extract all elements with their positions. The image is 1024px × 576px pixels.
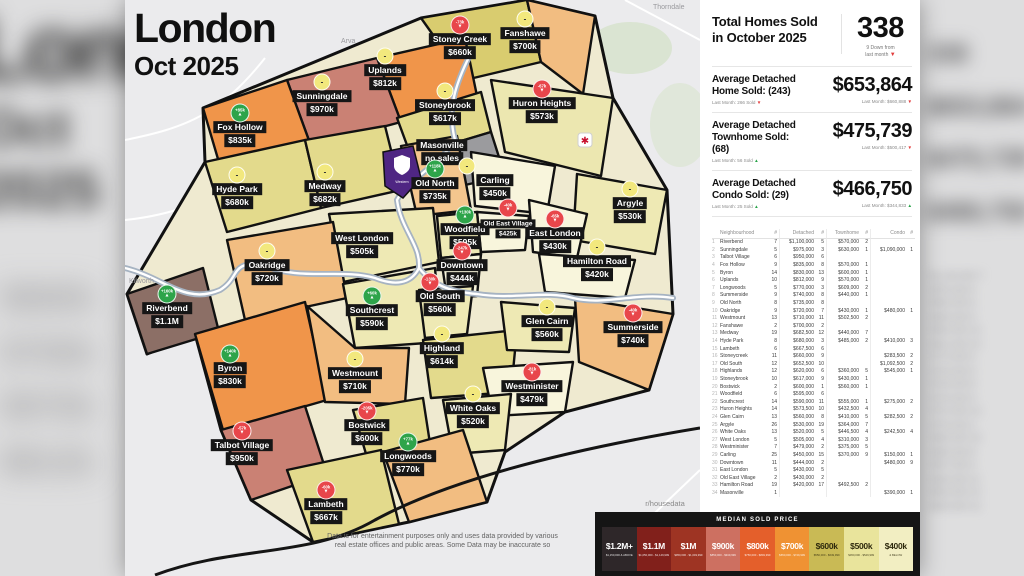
table-cell: $440,000: [827, 330, 861, 338]
disclaimer-line2: real estate offices and public areas. So…: [275, 541, 610, 550]
up-arrow-icon: ▲: [165, 294, 170, 299]
stat-label: Average DetachedCondo Sold: (29): [712, 178, 808, 202]
table-cell: 2: [861, 338, 871, 346]
table-cell: $410,000: [827, 414, 861, 422]
table-cell: [907, 323, 915, 331]
table-cell-neighbourhood: Summerside: [720, 292, 768, 300]
table-cell: $242,500: [871, 429, 907, 437]
table-cell: 13: [768, 315, 780, 323]
table-cell: 17: [712, 361, 720, 369]
table-cell: [871, 475, 907, 483]
table-cell: 24: [712, 414, 720, 422]
table-cell: 3: [907, 338, 915, 346]
table-cell: [871, 422, 907, 430]
change-badge-talbot-village: -57k▼: [233, 422, 252, 441]
legend-swatch-range: & BELOW: [889, 553, 902, 557]
change-badge-medway: -: [317, 164, 334, 181]
table-cell: 33: [712, 482, 720, 490]
table-cell: 2: [907, 361, 915, 369]
table-cell: 1: [907, 490, 915, 498]
table-cell: [871, 467, 907, 475]
table-cell: 2: [768, 384, 780, 392]
legend-swatch-label: $500k: [850, 541, 872, 551]
table-cell: $432,500: [827, 406, 861, 414]
table-cell: 3: [861, 437, 871, 445]
change-badge-argyle: -: [622, 181, 639, 198]
down-arrow-icon: ▼: [757, 100, 762, 105]
legend-swatch-range: $950,000 - $1,049,999: [674, 553, 702, 557]
table-cell: [861, 475, 871, 483]
table-cell: [907, 285, 915, 293]
table-cell: 5: [712, 270, 720, 278]
change-badge-downtown: -247k▼: [453, 242, 472, 261]
table-cell: 5: [816, 467, 827, 475]
table-cell: 19: [768, 330, 780, 338]
legend-swatch-400k: $400k & BELOW: [879, 527, 914, 571]
table-cell: 28: [712, 444, 720, 452]
table-cell: [827, 467, 861, 475]
change-badge-huron-heights: -67k▼: [533, 80, 552, 99]
table-cell: 3: [712, 254, 720, 262]
table-cell: $444,000: [780, 460, 816, 468]
table-cell: [861, 391, 871, 399]
table-cell: 5: [861, 414, 871, 422]
change-badge-east-london: -65k▼: [546, 210, 565, 229]
legend-swatch-700k: $700k $650,000 - $749,999: [775, 527, 810, 571]
table-cell: 6: [768, 391, 780, 399]
table-cell-neighbourhood: East London: [720, 467, 768, 475]
table-cell: 9: [768, 292, 780, 300]
legend-swatch-600k: $600k $550,000 - $649,999: [809, 527, 844, 571]
table-cell: [907, 376, 915, 384]
table-cell: [871, 330, 907, 338]
table-cell: 18: [712, 368, 720, 376]
total-homes-value: 338: [849, 14, 912, 43]
change-badge-old-south: -130k▼: [421, 273, 440, 292]
table-cell: $282,500: [871, 414, 907, 422]
table-cell: [861, 323, 871, 331]
blur-backdrop-left: London Oct 2025 $660k $700k $970k $812k: [0, 0, 125, 576]
table-cell: [871, 254, 907, 262]
city-map-svg: Western ✱: [125, 0, 700, 576]
table-cell: 9: [768, 262, 780, 270]
change-badge-stoneybrook: -: [437, 83, 454, 100]
table-cell: [907, 391, 915, 399]
table-cell: 2: [816, 323, 827, 331]
legend-swatch-label: $700k: [781, 541, 803, 551]
table-cell: 1: [907, 247, 915, 255]
table-header: Detached: [780, 229, 816, 239]
up-arrow-icon: ▲: [907, 203, 912, 208]
table-cell: [871, 346, 907, 354]
svg-text:Western: Western: [395, 180, 408, 184]
park-patch: [650, 83, 700, 167]
down-arrow-icon: ▼: [631, 313, 636, 318]
table-cell: 30: [712, 460, 720, 468]
table-cell: $560,000: [780, 414, 816, 422]
table-cell: 1: [907, 308, 915, 316]
down-arrow-icon: ▼: [240, 431, 245, 436]
table-cell: 22: [712, 399, 720, 407]
table-cell: 6: [816, 391, 827, 399]
map-pane: Western ✱ London Oct 2025 Arva Thorndale…: [125, 0, 700, 576]
table-cell: 10: [816, 361, 827, 369]
table-cell: [871, 384, 907, 392]
table-cell-neighbourhood: Longwoods: [720, 285, 768, 293]
stat-last-month-count: Last Month: 266 Sold ▼: [712, 100, 808, 105]
table-cell: [907, 300, 915, 308]
table-cell-neighbourhood: Fox Hollow: [720, 262, 768, 270]
table-cell: $680,000: [780, 338, 816, 346]
table-cell: [827, 391, 861, 399]
table-cell: 11: [768, 353, 780, 361]
change-badge-uplands: -: [377, 48, 394, 65]
table-cell: [907, 292, 915, 300]
stat-row-2: Average DetachedCondo Sold: (29) Last Mo…: [712, 178, 912, 209]
table-cell: 17: [816, 482, 827, 490]
legend-swatch-500k: $500k $450,000 - $549,999: [844, 527, 879, 571]
legend-swatch-label: $600k: [816, 541, 838, 551]
table-cell-neighbourhood: Woodfield: [720, 391, 768, 399]
change-badge-hamilton-road: -: [589, 239, 606, 256]
table-cell: $530,000: [780, 422, 816, 430]
table-cell: 10: [768, 376, 780, 384]
table-cell: 2: [768, 475, 780, 483]
table-cell: [861, 353, 871, 361]
table-cell: 23: [712, 406, 720, 414]
table-cell-neighbourhood: Southcrest: [720, 399, 768, 407]
legend-swatch-label: $400k: [885, 541, 907, 551]
total-change-line1: 9 Down from: [866, 45, 894, 51]
table-cell: $545,000: [871, 368, 907, 376]
up-arrow-icon: ▲: [228, 354, 233, 359]
table-cell-neighbourhood: Oakridge: [720, 308, 768, 316]
table-cell: $700,000: [780, 323, 816, 331]
table-cell: 2: [816, 460, 827, 468]
table-cell: $502,500: [827, 315, 861, 323]
table-cell: $480,000: [871, 308, 907, 316]
table-cell: 10: [712, 308, 720, 316]
down-arrow-icon: ▼: [506, 208, 511, 213]
table-cell: 25: [768, 452, 780, 460]
table-cell: 1: [861, 376, 871, 384]
table-cell: $150,000: [871, 452, 907, 460]
table-cell: $430,000: [827, 308, 861, 316]
table-cell: 5: [816, 239, 827, 247]
table-header: #: [907, 229, 915, 239]
table-cell: 9: [816, 376, 827, 384]
total-homes-title: Total Homes Sold in October 2025: [712, 14, 834, 47]
legend-swatch-range: $1,050,000 - $1,149,999: [639, 553, 669, 557]
table-cell: 7: [712, 285, 720, 293]
table-cell: 5: [768, 285, 780, 293]
stat-label: Average DetachedHome Sold: (243): [712, 74, 808, 98]
table-cell: $570,000: [827, 239, 861, 247]
table-cell: 9: [816, 353, 827, 361]
table-cell: $479,000: [780, 444, 816, 452]
table-cell: 1: [907, 368, 915, 376]
legend-swatch-11m: $1.1M $1,050,000 - $1,149,999: [637, 527, 672, 571]
table-cell: 31: [712, 467, 720, 475]
table-cell: $310,000: [827, 437, 861, 445]
legend-swatch-range: $850,000 - $949,999: [710, 553, 736, 557]
table-cell: 8: [816, 414, 827, 422]
table-cell: 25: [712, 422, 720, 430]
legend-swatches: $1.2M+ $1,150,000 & ABOVE$1.1M $1,050,00…: [602, 527, 913, 571]
table-header: #: [816, 229, 827, 239]
legend-swatch-12m: $1.2M+ $1,150,000 & ABOVE: [602, 527, 637, 571]
fanshawe-college-icon: ✱: [578, 133, 592, 147]
table-cell: 11: [712, 315, 720, 323]
table-cell: 1: [861, 262, 871, 270]
table-cell: [871, 437, 907, 445]
table-cell: 1: [861, 308, 871, 316]
legend-swatch-800k: $800k $750,000 - $849,999: [740, 527, 775, 571]
table-cell: $283,500: [871, 353, 907, 361]
table-cell: [861, 490, 871, 498]
table-cell: 1: [861, 399, 871, 407]
table-cell: $620,000: [780, 368, 816, 376]
up-arrow-icon: ▲: [238, 113, 243, 118]
change-badge-carling: -: [459, 158, 476, 175]
total-change-line2: last month: [865, 52, 888, 58]
change-badge-glen-cairn: -: [539, 299, 556, 316]
table-cell: $835,000: [780, 262, 816, 270]
up-arrow-icon: ▲: [406, 442, 411, 447]
table-cell: 9: [816, 277, 827, 285]
legend-swatch-900k: $900k $850,000 - $949,999: [706, 527, 741, 571]
stat-value: $475,739: [808, 120, 912, 143]
table-cell: $360,000: [827, 368, 861, 376]
table-cell: $430,000: [780, 467, 816, 475]
table-cell-neighbourhood: Fanshawe: [720, 323, 768, 331]
legend-swatch-range: $750,000 - $849,999: [745, 553, 771, 557]
table-header: Condo: [871, 229, 907, 239]
table-cell: 2: [907, 414, 915, 422]
table-cell: 11: [768, 460, 780, 468]
up-arrow-icon: ▲: [370, 296, 375, 301]
table-cell: [871, 262, 907, 270]
down-arrow-icon: ▼: [907, 99, 912, 104]
table-cell: 1: [861, 384, 871, 392]
table-cell: $364,000: [827, 422, 861, 430]
price-legend: MEDIAN SOLD PRICE $1.2M+ $1,150,000 & AB…: [595, 512, 920, 576]
poster-title-line1: London: [134, 8, 275, 49]
table-cell: $275,000: [871, 399, 907, 407]
table-cell: 2: [861, 315, 871, 323]
table-cell: 3: [816, 285, 827, 293]
table-cell: 16: [712, 353, 720, 361]
change-badge-sunningdale: -: [314, 74, 331, 91]
table-cell: $573,500: [780, 406, 816, 414]
table-cell: 6: [768, 346, 780, 354]
stat-row-1: Average DetachedTownhome Sold: (68) Last…: [712, 120, 912, 163]
total-homes-title-line1: Total Homes Sold: [712, 14, 834, 30]
change-badge-old-east-village: -40k▼: [499, 199, 518, 218]
down-arrow-icon: ▼: [365, 411, 370, 416]
table-cell: [871, 315, 907, 323]
table-cell: 5: [768, 437, 780, 445]
table-cell: 7: [816, 308, 827, 316]
table-cell: [907, 254, 915, 262]
table-cell: 26: [768, 422, 780, 430]
table-cell: [871, 239, 907, 247]
table-cell: $440,000: [827, 292, 861, 300]
table-header: #: [861, 229, 871, 239]
table-cell: $595,000: [780, 391, 816, 399]
total-homes-title-line2: in October 2025: [712, 30, 834, 46]
table-cell: $830,000: [780, 270, 816, 278]
change-badge-white-oaks: -: [465, 386, 482, 403]
table-cell: 8: [816, 300, 827, 308]
table-cell: 4: [861, 406, 871, 414]
table-cell: 12: [768, 361, 780, 369]
table-cell: $617,000: [780, 376, 816, 384]
change-badge-byron: +140k▲: [221, 345, 240, 364]
table-cell: 13: [768, 414, 780, 422]
legend-swatch-label: $1.1M: [643, 541, 665, 551]
table-cell-neighbourhood: White Oaks: [720, 429, 768, 437]
table-cell: [827, 323, 861, 331]
table-cell-neighbourhood: Talbot Village: [720, 254, 768, 262]
table-cell: $975,000: [780, 247, 816, 255]
table-cell: 14: [768, 406, 780, 414]
table-cell-neighbourhood: Old North: [720, 300, 768, 308]
credit-label: r/housedata: [620, 499, 700, 508]
table-cell: 29: [712, 452, 720, 460]
up-arrow-icon: ▲: [433, 169, 438, 174]
table-cell: [861, 300, 871, 308]
poster-title-line2: Oct 2025: [134, 51, 275, 82]
blur-title-echo: London: [0, 6, 97, 93]
table-cell: [907, 315, 915, 323]
table-cell: $1,092,500: [871, 361, 907, 369]
table-cell: 6: [712, 277, 720, 285]
table-cell: 21: [712, 391, 720, 399]
table-cell: 12: [816, 330, 827, 338]
table-cell: $667,500: [780, 346, 816, 354]
table-cell: $520,000: [780, 429, 816, 437]
table-cell: [861, 361, 871, 369]
change-badge-westmount: -: [347, 351, 364, 368]
table-cell: 32: [712, 475, 720, 483]
table-cell: 2: [816, 475, 827, 483]
table-cell: 13: [768, 429, 780, 437]
stats-panel: Total Homes Sold in October 2025 338 9 D…: [700, 0, 920, 576]
table-cell: 2: [712, 247, 720, 255]
table-cell: 7: [861, 330, 871, 338]
table-cell: 6: [768, 254, 780, 262]
table-cell: 2: [816, 444, 827, 452]
table-cell: 14: [768, 270, 780, 278]
svg-text:✱: ✱: [581, 136, 589, 147]
table-cell: 3: [816, 247, 827, 255]
change-badge-hyde-park: -: [229, 167, 246, 184]
region-shape-hamilton-road: [539, 254, 635, 298]
down-arrow-icon: ▼: [907, 145, 912, 150]
table-cell: $390,000: [871, 490, 907, 498]
table-cell: [871, 300, 907, 308]
blur-table-echo: $1,100,000 7 $975,000 5 $950,000 6 $835,…: [930, 270, 1024, 513]
down-arrow-icon: ▼: [458, 25, 463, 30]
table-cell: 11: [816, 399, 827, 407]
legend-swatch-label: $1.2M+: [606, 541, 633, 551]
stat-last-month-value: Last Month: $660,888 ▼: [808, 99, 912, 104]
table-cell: $652,500: [780, 361, 816, 369]
table-cell: [907, 406, 915, 414]
table-cell: 10: [816, 406, 827, 414]
stat-last-month-count: Last Month: 56 Sold ▲: [712, 158, 808, 163]
header-divider: [841, 14, 842, 54]
change-badge-fanshawe: -: [517, 11, 534, 28]
table-cell-neighbourhood: Uplands: [720, 277, 768, 285]
table-cell: 13: [712, 330, 720, 338]
table-cell: 20: [712, 384, 720, 392]
table-cell: 14: [768, 399, 780, 407]
table-cell: 6: [816, 254, 827, 262]
table-cell: $950,000: [780, 254, 816, 262]
up-arrow-icon: ▲: [754, 204, 759, 209]
table-cell-neighbourhood: Stoneybrook: [720, 376, 768, 384]
table-cell-neighbourhood: Sunningdale: [720, 247, 768, 255]
table-cell: [871, 323, 907, 331]
legend-swatch-range: $1,150,000 & ABOVE: [606, 553, 633, 557]
table-cell: 1: [712, 239, 720, 247]
table-cell: [907, 437, 915, 445]
table-cell: 19: [816, 422, 827, 430]
table-cell: [861, 467, 871, 475]
table-cell: 5: [816, 429, 827, 437]
stat-last-month-value: Last Month: $500,417 ▼: [808, 145, 912, 150]
table-cell-neighbourhood: Westminister: [720, 444, 768, 452]
table-cell: 8: [768, 338, 780, 346]
change-badge-lambeth: -60k▼: [317, 481, 336, 500]
table-cell: [871, 376, 907, 384]
table-cell: 8: [816, 292, 827, 300]
table-cell: 19: [712, 376, 720, 384]
table-cell: 5: [768, 247, 780, 255]
table-cell: $570,000: [827, 262, 861, 270]
table-cell: 3: [816, 338, 827, 346]
table-cell: $410,000: [871, 338, 907, 346]
table-cell-neighbourhood: Masonville: [720, 490, 768, 498]
table-cell: $430,000: [780, 475, 816, 483]
table-cell: $420,000: [780, 482, 816, 490]
table-cell: [827, 490, 861, 498]
table-cell-neighbourhood: Old South: [720, 361, 768, 369]
table-cell: 2: [907, 399, 915, 407]
region-shape-old-east-village: [477, 212, 529, 252]
poster-title: London Oct 2025: [134, 8, 275, 82]
table-cell: [871, 285, 907, 293]
table-cell: 5: [861, 368, 871, 376]
table-cell: 5: [768, 467, 780, 475]
table-cell-neighbourhood: Stoneycreek: [720, 353, 768, 361]
table-cell: [907, 346, 915, 354]
total-homes-change: 9 Down from last month ▼: [849, 45, 912, 59]
stat-last-month-value: Last Month: $344,833 ▲: [808, 203, 912, 208]
change-badge-longwoods: +77k▲: [399, 433, 418, 452]
table-cell-neighbourhood: Old East Village: [720, 475, 768, 483]
table-cell-neighbourhood: Argyle: [720, 422, 768, 430]
table-cell: $660,000: [780, 353, 816, 361]
table-cell: [827, 346, 861, 354]
table-cell: $720,000: [780, 308, 816, 316]
table-cell-neighbourhood: Medway: [720, 330, 768, 338]
table-cell: [827, 361, 861, 369]
table-cell-neighbourhood: West London: [720, 437, 768, 445]
down-arrow-icon: ▼: [890, 52, 896, 58]
